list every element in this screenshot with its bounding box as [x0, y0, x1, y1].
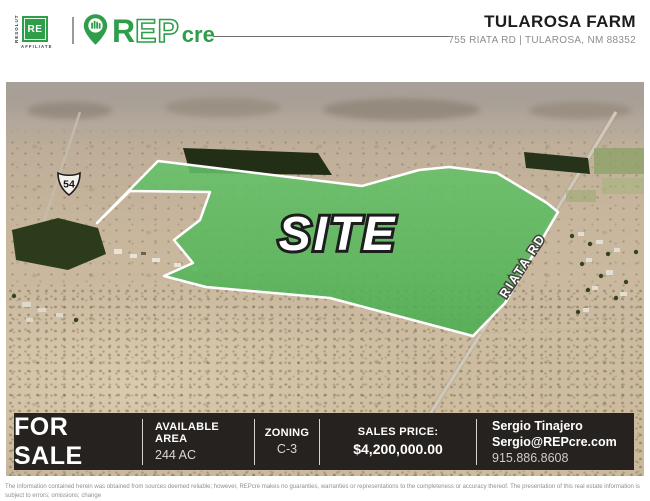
property-address: 755 RIATA RD | TULAROSA, NM 88352 [448, 35, 636, 46]
wordmark-cre: cre [182, 22, 215, 48]
contact-name: Sergio Tinajero [492, 419, 634, 433]
field-right-1 [594, 148, 644, 174]
highway-54-number: 54 [63, 179, 75, 191]
sales-price-value: $4,200,000.00 [320, 441, 476, 457]
disclaimer-line-1: The information contained herein was obt… [5, 483, 647, 500]
wordmark-ep: EP [135, 14, 180, 48]
header: RESOLUT RE AFFILIATE REPcre TULAROSA FAR… [0, 0, 650, 82]
affiliate-label: AFFILIATE [21, 44, 55, 49]
available-area-label: AVAILABLE AREA [155, 421, 254, 445]
site-label: SITE [279, 208, 398, 261]
available-area-value: 244 AC [155, 448, 254, 462]
buildings-bottom-left [22, 302, 63, 322]
orchard-top-right [524, 152, 590, 174]
logo-divider [72, 17, 74, 44]
field-right-2 [602, 178, 644, 194]
for-sale-label: FOR SALE [14, 413, 142, 471]
highway-54-shield: 54 [58, 173, 80, 195]
map-pin-icon [82, 13, 109, 51]
dirt-road [461, 326, 644, 334]
orchard-left [12, 218, 106, 270]
contact-block: Sergio Tinajero Sergio@REPcre.com 915.88… [477, 419, 634, 465]
zoning-label: ZONING [255, 427, 319, 439]
flyer-page: RESOLUT RE AFFILIATE REPcre TULAROSA FAR… [0, 0, 650, 501]
property-name: TULAROSA FARM [448, 12, 636, 32]
re-logo-badge: RE [22, 16, 48, 42]
contact-email: Sergio@REPcre.com [492, 435, 634, 449]
header-rule [213, 36, 453, 37]
resolut-vertical-label: RESOLUT [14, 16, 19, 43]
contact-phone: 915.886.8608 [492, 451, 634, 465]
houses-right [578, 232, 627, 312]
repcre-wordmark: REPcre [112, 14, 215, 48]
wordmark-r: R [112, 14, 135, 48]
resolut-re-affiliate-logo: RESOLUT RE AFFILIATE [21, 15, 63, 55]
info-bar: FOR SALE AVAILABLE AREA 244 AC ZONING C-… [14, 413, 634, 470]
zoning-value: C-3 [255, 442, 319, 456]
sales-price-label: SALES PRICE: [320, 426, 476, 438]
disclaimer: The information contained herein was obt… [5, 483, 647, 501]
field-right-3 [566, 190, 596, 202]
